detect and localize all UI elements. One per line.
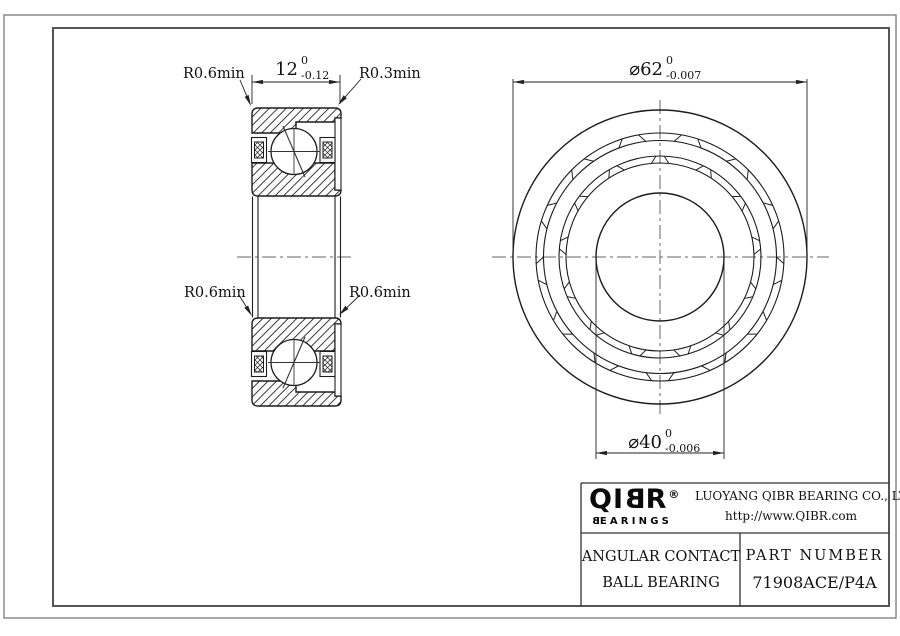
bore-dim-value: ⌀40 <box>628 432 662 453</box>
arrowhead <box>245 95 251 106</box>
bearing-drawing-canvas: 12 0 -0.12 R0.6min R0.3min R0.6min R0.6m… <box>0 0 900 636</box>
arrowhead <box>713 451 724 455</box>
cage-pocket-line <box>575 203 578 211</box>
cage-pocket-line <box>590 321 591 330</box>
cage-pocket-line <box>609 170 610 179</box>
arrowhead <box>244 306 252 317</box>
cage-pocket-line <box>668 373 674 381</box>
cage-pocket-line <box>729 321 730 330</box>
cage-pocket-line <box>610 366 619 371</box>
cage-pocket-line <box>596 333 604 335</box>
cage-pocket-line <box>751 282 756 289</box>
cage-pocket-line <box>553 311 556 320</box>
cage-pocket-line <box>617 166 624 170</box>
cage-pocket-line <box>763 311 766 320</box>
outer-dim-value: ⌀62 <box>629 59 663 80</box>
cage-section-top-right <box>323 142 332 158</box>
cage-pocket-line <box>773 221 779 229</box>
cage-section-bottom-left <box>255 356 264 372</box>
cage-pocket-line <box>564 282 569 289</box>
cage-pocket-line <box>777 257 784 264</box>
cage-pocket-line <box>725 353 726 363</box>
title-block-borders <box>581 483 889 606</box>
cage-pocket-line <box>541 221 547 229</box>
cage-pocket-line <box>711 170 712 179</box>
cage-pocket-line <box>646 373 652 381</box>
cage-pocket-line <box>638 135 645 141</box>
arrowhead <box>796 80 807 84</box>
cage-pocket-line <box>584 159 594 161</box>
drawing-frame <box>53 28 889 606</box>
counterbore-face-top <box>335 118 341 190</box>
cross-section-view: 12 0 -0.12 R0.6min R0.3min R0.6min R0.6m… <box>183 54 421 406</box>
cage-pocket-line <box>754 249 761 254</box>
cage-pocket-line <box>594 353 595 363</box>
width-dim-lower-tol: -0.12 <box>301 69 329 82</box>
cage-section-bottom-right <box>323 356 332 372</box>
width-dim-value: 12 <box>275 59 298 80</box>
bore-dim-upper-tol: 0 <box>665 427 672 440</box>
cage-pocket-line <box>742 203 745 211</box>
outer-page-border <box>4 15 896 618</box>
cage-pocket-line <box>572 170 573 180</box>
front-view: ⌀62 0 -0.007 ⌀40 0 -0.006 <box>492 54 829 459</box>
fillet-label-top-left: R0.6min <box>183 66 245 82</box>
bore-dim-lower-tol: -0.006 <box>665 442 700 455</box>
cage-pocket-line <box>664 156 669 163</box>
cage-pocket-line <box>559 249 566 254</box>
engineering-drawing-page: 12 0 -0.12 R0.6min R0.3min R0.6min R0.6m… <box>0 0 900 636</box>
fillet-label-bottom-left: R0.6min <box>184 285 246 301</box>
fillet-label-bottom-right: R0.6min <box>349 285 411 301</box>
cage-pocket-line <box>726 159 736 161</box>
cage-pocket-line <box>651 156 656 163</box>
outer-dim-upper-tol: 0 <box>666 54 673 67</box>
cage-pocket-line <box>696 166 704 170</box>
counterbore-face-bottom <box>335 324 341 396</box>
cage-pocket-line <box>701 366 710 371</box>
cage-pocket-line <box>674 135 681 141</box>
cage-pocket-line <box>715 333 723 335</box>
cage-pocket-line <box>747 170 748 180</box>
cage-pocket-line <box>674 350 680 356</box>
fillet-label-top-right: R0.3min <box>359 66 421 82</box>
cage-section-top-left <box>255 142 264 158</box>
width-dim-upper-tol: 0 <box>301 54 308 67</box>
cage-pocket-line <box>640 350 646 356</box>
cage-pocket-line <box>536 257 543 264</box>
arrowhead <box>596 451 607 455</box>
arrowhead <box>252 80 263 84</box>
outer-dim-lower-tol: -0.007 <box>666 69 701 82</box>
arrowhead <box>513 80 524 84</box>
arrowhead <box>329 80 340 84</box>
